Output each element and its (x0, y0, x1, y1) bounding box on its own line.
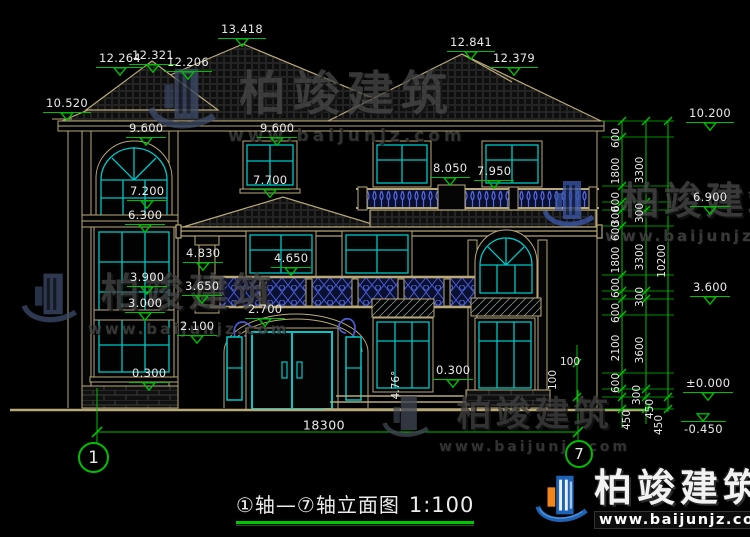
dimension-label: 1800 (610, 158, 622, 185)
elevation-triangle-icon (113, 67, 127, 76)
elevation-value: 0.300 (433, 365, 473, 380)
elevation-value: 2.700 (245, 304, 285, 319)
elevation-marker: 6.900 (690, 192, 730, 215)
elevation-marker: 7.950 (474, 166, 514, 189)
dimension-label: 600 (610, 278, 622, 298)
elevation-value: 6.300 (125, 210, 165, 225)
company-logo-icon (534, 468, 590, 526)
elevation-value: 4.650 (271, 253, 311, 268)
elevation-triangle-icon (701, 392, 715, 401)
elevation-value: 6.900 (690, 192, 730, 207)
elevation-marker: 10.200 (686, 108, 734, 131)
elevation-value: 10.200 (686, 108, 734, 123)
elevation-marker: 3.900 (127, 272, 167, 295)
elevation-triangle-icon (703, 122, 717, 131)
elevation-value: 12.841 (447, 37, 495, 52)
elevation-marker: 12.841 (447, 37, 495, 60)
elevation-value: 4.830 (183, 248, 223, 263)
axis-number: 7 (574, 445, 584, 463)
dimension-label: 300 (634, 203, 646, 223)
elevation-marker: 12.206 (164, 57, 212, 80)
elevation-marker: 0.300 (129, 368, 169, 391)
dimension-label: 1800 (610, 247, 622, 274)
elevation-value: 3.000 (125, 298, 165, 313)
drawing-scale: 1:100 (409, 493, 475, 517)
elevation-value: 10.520 (43, 98, 91, 113)
elevation-triangle-icon (190, 335, 204, 344)
elevation-value: 7.700 (250, 175, 290, 190)
axis-bubble-1: 1 (78, 442, 109, 473)
elevation-triangle-icon (146, 64, 160, 73)
dimension-label: 600 (610, 373, 622, 393)
elevation-marker: 4.650 (271, 253, 311, 276)
elevation-triangle-icon (235, 38, 249, 47)
dimension-label: 4.76° (390, 371, 402, 400)
elevation-value: ±0.000 (683, 378, 733, 393)
elevation-marker: 7.200 (127, 186, 167, 209)
elevation-value: 0.300 (129, 368, 169, 383)
elevation-marker: 9.600 (257, 123, 297, 146)
elevation-marker: 10.520 (43, 98, 91, 121)
elevation-marker: 7.700 (250, 175, 290, 198)
overall-width-dimension: 18300 (303, 418, 345, 433)
elevation-triangle-icon (140, 286, 154, 295)
company-name: 柏竣建筑 (594, 468, 750, 510)
elevation-marker: 2.700 (245, 304, 285, 327)
elevation-marker: -0.450 (681, 413, 726, 436)
dimension-label: 100 (560, 356, 580, 368)
elevation-triangle-icon (263, 189, 277, 198)
elevation-marker: 9.600 (126, 123, 166, 146)
third-floor (240, 141, 599, 210)
elevation-value: 7.950 (474, 166, 514, 181)
elevation-triangle-icon (270, 137, 284, 146)
elevation-triangle-icon (443, 177, 457, 186)
dimension-label: 10200 (656, 244, 668, 277)
dimension-label: 600 (610, 128, 622, 148)
dimension-label: 600 (610, 221, 622, 241)
elevation-marker: 13.418 (218, 24, 266, 47)
elevation-triangle-icon (138, 312, 152, 321)
dimension-label: 300 (634, 287, 646, 307)
dimension-label: 450 (653, 415, 665, 435)
elevation-value: 2.100 (177, 321, 217, 336)
elevation-value: 9.600 (257, 123, 297, 138)
elevation-triangle-icon (284, 267, 298, 276)
elevation-triangle-icon (138, 224, 152, 233)
title-underline-thin (236, 525, 474, 526)
elevation-value: 3.650 (182, 281, 222, 296)
elevation-marker: 3.650 (182, 281, 222, 304)
dimension-label: 300 (631, 385, 643, 405)
elevation-triangle-icon (142, 382, 156, 391)
drawing-title-block: ①轴—⑦轴立面图1:100 (236, 489, 474, 526)
elevation-value: 13.418 (218, 24, 266, 39)
axis-bubble-7: 7 (565, 440, 593, 468)
elevation-triangle-icon (446, 379, 460, 388)
elevation-triangle-icon (703, 296, 717, 305)
cad-canvas: 柏竣建筑 www.baijunjz.com 柏竣建筑 www.baijunjz.… (0, 0, 750, 537)
elevation-value: 12.379 (490, 53, 538, 68)
dimension-label: 3600 (634, 337, 646, 364)
elevation-marker: ±0.000 (683, 378, 733, 401)
elevation-triangle-icon (181, 71, 195, 80)
elevation-marker: 8.050 (430, 163, 470, 186)
elevation-value: 3.900 (127, 272, 167, 287)
dimension-label: 600 (610, 303, 622, 323)
elevation-triangle-icon (258, 318, 272, 327)
elevation-value: -0.450 (681, 421, 726, 436)
elevation-triangle-icon (703, 206, 717, 215)
dimension-label: 100 (547, 370, 559, 390)
title-underline (236, 521, 474, 524)
elevation-value: 9.600 (126, 123, 166, 138)
elevation-marker: 2.100 (177, 321, 217, 344)
company-url: www.baijunjz.com (594, 511, 750, 529)
elevation-value: 7.200 (127, 186, 167, 201)
dimension-label: 2100 (610, 335, 622, 362)
elevation-value: 8.050 (430, 163, 470, 178)
elevation-triangle-icon (195, 295, 209, 304)
elevation-triangle-icon (507, 67, 521, 76)
drawing-title: ①轴—⑦轴立面图 (236, 493, 400, 517)
elevation-value: 3.600 (690, 282, 730, 297)
elevation-triangle-icon (487, 180, 501, 189)
dimension-label: 450 (621, 410, 633, 430)
elevation-marker: 3.600 (690, 282, 730, 305)
dimension-label: 3300 (634, 244, 646, 271)
elevation-marker: 3.000 (125, 298, 165, 321)
elevation-marker: 12.379 (490, 53, 538, 76)
axis-number: 1 (88, 448, 99, 468)
dimension-label: 3300 (634, 157, 646, 184)
elevation-triangle-icon (196, 262, 210, 271)
elevation-value: 12.206 (164, 57, 212, 72)
elevation-triangle-icon (60, 112, 74, 121)
elevation-marker: 0.300 (433, 365, 473, 388)
elevation-marker: 4.830 (183, 248, 223, 271)
company-logo: 柏竣建筑 www.baijunjz.com (534, 468, 750, 529)
elevation-marker: 6.300 (125, 210, 165, 233)
elevation-triangle-icon (139, 137, 153, 146)
elevation-triangle-icon (464, 51, 478, 60)
